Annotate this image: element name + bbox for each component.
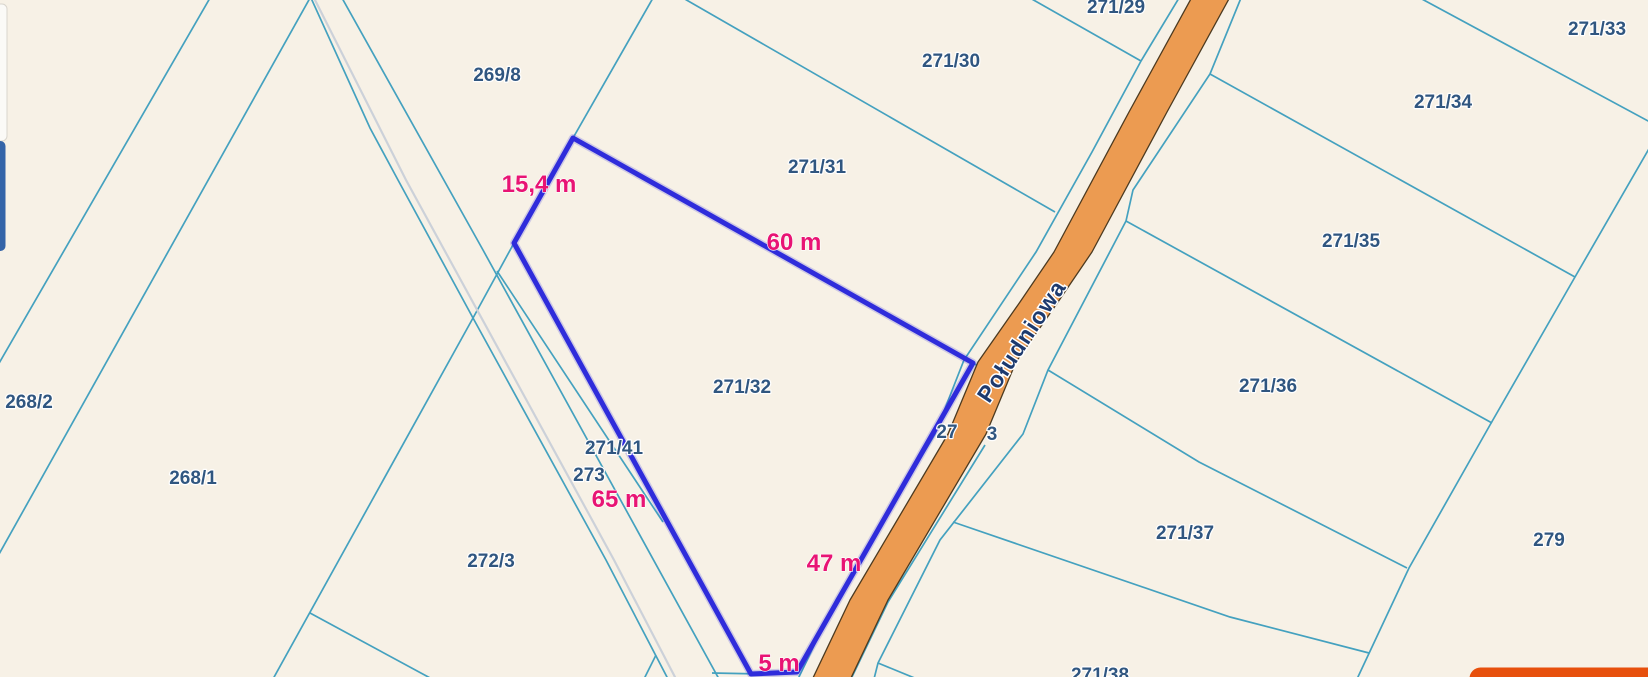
svg-text:27: 27 [936, 422, 957, 443]
svg-text:268/2: 268/2 [5, 392, 53, 413]
svg-text:271/32: 271/32 [713, 377, 771, 398]
svg-text:271/30: 271/30 [922, 51, 980, 72]
svg-text:268/1: 268/1 [169, 468, 217, 489]
svg-text:15,4 m: 15,4 m [502, 171, 577, 198]
svg-text:60 m: 60 m [767, 229, 822, 256]
svg-text:271/36: 271/36 [1239, 376, 1297, 397]
svg-text:273: 273 [573, 465, 605, 486]
svg-text:271/34: 271/34 [1414, 92, 1473, 113]
svg-text:269/8: 269/8 [473, 65, 521, 86]
svg-text:3: 3 [987, 424, 998, 445]
svg-text:271/41: 271/41 [585, 438, 644, 459]
svg-text:47 m: 47 m [807, 550, 862, 577]
svg-text:279: 279 [1533, 530, 1565, 551]
svg-text:5 m: 5 m [758, 650, 799, 677]
svg-text:271/29: 271/29 [1087, 0, 1145, 18]
svg-text:65 m: 65 m [592, 486, 647, 513]
svg-text:271/37: 271/37 [1156, 523, 1214, 544]
svg-text:271/31: 271/31 [788, 157, 847, 178]
svg-text:271/35: 271/35 [1322, 231, 1381, 252]
svg-text:272/3: 272/3 [467, 551, 515, 572]
svg-text:271/38: 271/38 [1071, 665, 1129, 677]
svg-text:271/33: 271/33 [1568, 19, 1626, 40]
